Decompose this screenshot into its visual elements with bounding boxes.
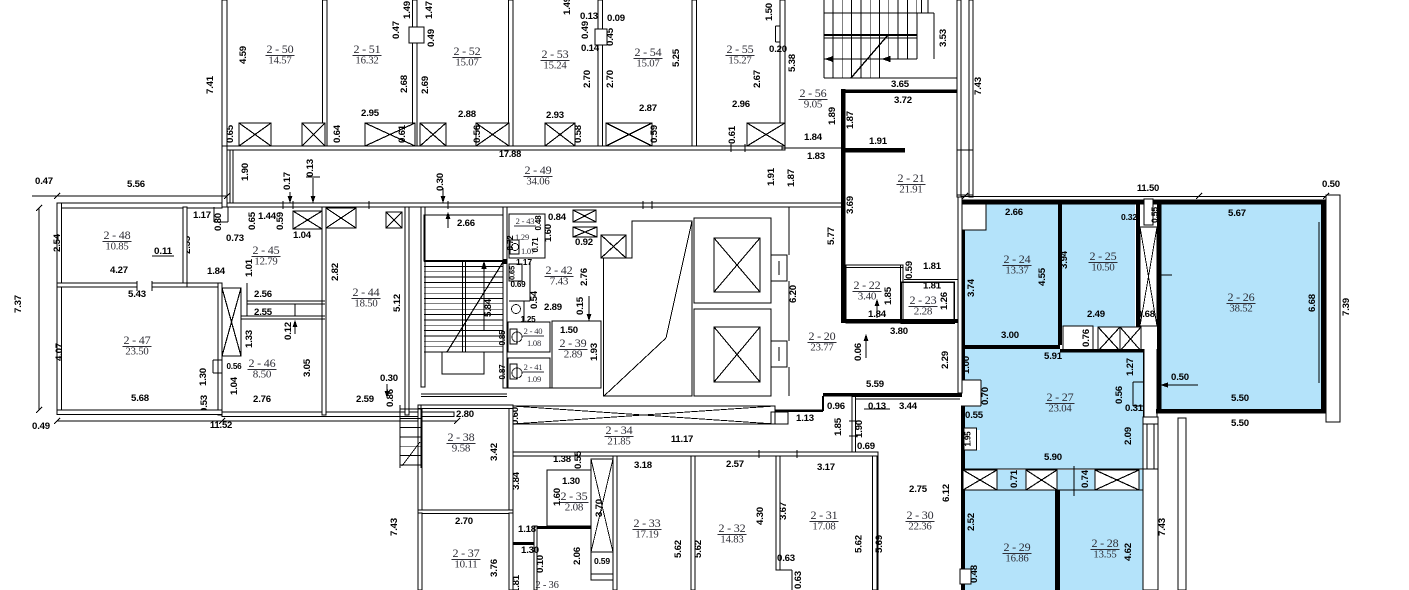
svg-text:2 - 48: 2 - 48 [104,230,131,242]
svg-text:2.52: 2.52 [966,513,976,531]
svg-text:1.49: 1.49 [402,1,412,19]
svg-text:0.68: 0.68 [1137,309,1155,319]
svg-text:2 - 20: 2 - 20 [809,331,836,343]
svg-text:1.18: 1.18 [518,524,536,534]
svg-text:5.62: 5.62 [693,540,703,558]
svg-text:2 - 43: 2 - 43 [516,216,535,226]
svg-text:0.49: 0.49 [32,421,50,431]
svg-text:3.05: 3.05 [302,359,312,377]
svg-text:1.25: 1.25 [521,315,537,324]
svg-text:1.04: 1.04 [229,376,239,395]
svg-text:1.38: 1.38 [553,454,571,464]
svg-text:0.48: 0.48 [534,215,543,231]
svg-text:13.55: 13.55 [1093,550,1116,561]
svg-text:5.59: 5.59 [866,379,884,389]
svg-text:0.56: 0.56 [1114,386,1124,404]
svg-text:1.30: 1.30 [562,476,580,486]
svg-text:0.65: 0.65 [225,125,235,143]
svg-text:2 - 27: 2 - 27 [1047,392,1074,404]
svg-text:4.59: 4.59 [238,46,248,64]
svg-text:0.61: 0.61 [727,126,737,144]
svg-text:34.06: 34.06 [526,177,549,188]
svg-text:2 - 46: 2 - 46 [249,358,276,370]
svg-text:7.41: 7.41 [205,76,215,94]
svg-text:5.50: 5.50 [1231,418,1249,428]
svg-text:0.70: 0.70 [980,387,990,405]
svg-text:1.49: 1.49 [562,0,572,15]
svg-text:14.57: 14.57 [268,56,291,67]
svg-text:0.49: 0.49 [580,21,590,39]
svg-text:2.28: 2.28 [914,307,933,318]
svg-text:1.90: 1.90 [240,163,250,181]
svg-text:5.62: 5.62 [673,540,683,558]
svg-text:0.47: 0.47 [391,21,401,39]
svg-text:2 - 39: 2 - 39 [560,338,587,350]
svg-text:0.13: 0.13 [580,11,598,21]
svg-text:10.50: 10.50 [1091,263,1114,274]
svg-text:0.45: 0.45 [605,28,615,46]
svg-text:2.66: 2.66 [457,218,475,228]
svg-text:2 - 34: 2 - 34 [606,425,633,437]
svg-text:5.84: 5.84 [483,298,493,317]
svg-text:5.91: 5.91 [1044,351,1062,361]
svg-text:3.74: 3.74 [966,278,976,297]
svg-text:2 - 37: 2 - 37 [453,548,480,560]
svg-text:0.72: 0.72 [506,235,515,251]
svg-text:0.63: 0.63 [777,553,795,563]
svg-text:2 - 44: 2 - 44 [353,287,380,299]
svg-text:23.04: 23.04 [1048,404,1072,415]
svg-text:5.69: 5.69 [874,535,884,553]
svg-text:2.66: 2.66 [1005,207,1023,217]
svg-text:1.50: 1.50 [560,325,578,335]
svg-text:2.70: 2.70 [605,70,615,88]
svg-text:2 - 29: 2 - 29 [1004,542,1031,554]
svg-text:5.12: 5.12 [392,294,402,312]
svg-text:5.62: 5.62 [854,535,864,553]
svg-text:2.59: 2.59 [356,394,374,404]
svg-text:0.17: 0.17 [282,172,292,190]
svg-text:0.71: 0.71 [531,237,540,253]
svg-text:0.85: 0.85 [498,330,507,346]
svg-text:0.13: 0.13 [305,159,315,177]
svg-text:7.43: 7.43 [550,277,569,288]
svg-text:2 - 21: 2 - 21 [898,173,925,185]
svg-text:0.12: 0.12 [283,322,293,340]
svg-text:0.50: 0.50 [1322,179,1340,189]
svg-text:1.84: 1.84 [804,132,823,142]
svg-text:2 - 24: 2 - 24 [1004,254,1031,266]
svg-text:2 - 32: 2 - 32 [719,523,746,535]
svg-text:18.50: 18.50 [354,299,377,310]
svg-text:2.54: 2.54 [52,233,62,252]
svg-text:0.92: 0.92 [575,237,593,247]
svg-text:0.13: 0.13 [868,401,886,411]
svg-text:0.58: 0.58 [573,125,583,143]
svg-text:4.62: 4.62 [1123,543,1133,561]
svg-text:1.04: 1.04 [293,230,312,240]
svg-text:2.76: 2.76 [579,268,589,286]
svg-text:7.43: 7.43 [973,77,983,95]
svg-text:1.81: 1.81 [923,261,941,271]
svg-text:0.61: 0.61 [397,125,407,143]
svg-text:1.01: 1.01 [244,259,254,277]
svg-text:2 - 33: 2 - 33 [634,518,661,530]
svg-text:16.86: 16.86 [1005,554,1028,565]
svg-text:6.12: 6.12 [941,484,951,502]
svg-text:3.17: 3.17 [817,462,835,472]
svg-text:2 - 25: 2 - 25 [1090,251,1117,263]
svg-text:0.49: 0.49 [426,29,436,47]
svg-text:0.30: 0.30 [380,373,398,383]
svg-text:2 - 45: 2 - 45 [253,245,280,257]
svg-text:1.81: 1.81 [923,281,941,291]
svg-text:1.33: 1.33 [244,330,254,348]
svg-text:17.08: 17.08 [812,522,835,533]
svg-text:0.63: 0.63 [793,571,803,589]
svg-text:4.27: 4.27 [110,265,128,275]
svg-text:7.37: 7.37 [13,295,23,313]
svg-text:1.17: 1.17 [516,257,532,267]
svg-text:1.91: 1.91 [766,168,776,186]
svg-text:2.29: 2.29 [940,351,950,369]
svg-text:2 - 41: 2 - 41 [524,362,543,372]
svg-text:2 - 49: 2 - 49 [525,165,552,177]
svg-text:2.08: 2.08 [565,503,584,514]
svg-text:0.64: 0.64 [332,124,342,143]
svg-text:2.70: 2.70 [582,70,592,88]
svg-text:1.09: 1.09 [527,374,541,384]
svg-text:2.76: 2.76 [253,394,271,404]
svg-text:1.85: 1.85 [833,418,843,436]
svg-text:3.67: 3.67 [778,502,788,520]
svg-text:1.27: 1.27 [1125,358,1135,376]
svg-text:0.59: 0.59 [649,125,659,143]
svg-text:0.06: 0.06 [853,343,863,361]
svg-text:1.83: 1.83 [807,151,825,161]
svg-text:1.90: 1.90 [854,420,864,438]
svg-text:0.74: 0.74 [1080,469,1090,488]
svg-text:2 - 35: 2 - 35 [561,491,588,503]
svg-text:1.30: 1.30 [521,545,539,555]
svg-text:0.11: 0.11 [154,246,172,256]
svg-text:2.89: 2.89 [544,302,562,312]
svg-text:1.47: 1.47 [424,1,434,19]
svg-text:0.73: 0.73 [226,233,244,243]
svg-text:10.11: 10.11 [454,560,477,571]
svg-text:2 - 30: 2 - 30 [907,510,934,522]
svg-text:2.96: 2.96 [732,99,750,109]
svg-text:17.19: 17.19 [635,530,658,541]
svg-text:5.77: 5.77 [826,227,836,245]
svg-text:1.30: 1.30 [198,368,208,386]
svg-text:2.57: 2.57 [726,459,744,469]
svg-text:14.83: 14.83 [720,535,743,546]
svg-text:2.75: 2.75 [909,484,927,494]
svg-text:23.77: 23.77 [810,343,833,354]
svg-text:3.65: 3.65 [891,79,909,89]
svg-text:7.43: 7.43 [389,518,399,536]
svg-text:0.50: 0.50 [1171,372,1189,382]
svg-text:15.27: 15.27 [728,56,751,67]
svg-text:0.56: 0.56 [472,125,482,143]
svg-text:1.84: 1.84 [207,266,226,276]
svg-text:2.88: 2.88 [458,109,476,119]
svg-text:5.25: 5.25 [671,49,681,67]
svg-text:17.88: 17.88 [499,149,521,159]
svg-text:9.58: 9.58 [452,444,471,455]
svg-text:4.30: 4.30 [755,507,765,525]
svg-text:13.37: 13.37 [1005,266,1028,277]
svg-text:0.55: 0.55 [573,451,583,469]
svg-text:1.60: 1.60 [543,224,553,242]
svg-text:8.50: 8.50 [253,370,272,381]
svg-text:3.69: 3.69 [845,196,855,214]
svg-text:2 - 28: 2 - 28 [1092,538,1119,550]
svg-text:0.55: 0.55 [965,410,983,420]
svg-text:2 - 50: 2 - 50 [267,44,294,56]
svg-text:1.87: 1.87 [845,111,855,129]
svg-text:1.84: 1.84 [868,309,887,319]
svg-text:1.95: 1.95 [964,431,973,447]
svg-text:2.67: 2.67 [752,70,762,88]
svg-text:0.32: 0.32 [1121,212,1137,222]
svg-text:22.36: 22.36 [908,522,931,533]
svg-text:16.32: 16.32 [355,56,378,67]
svg-text:2.09: 2.09 [1123,427,1133,445]
svg-text:2 - 51: 2 - 51 [354,44,381,56]
svg-text:21.85: 21.85 [607,437,630,448]
svg-text:2.06: 2.06 [572,547,582,565]
svg-text:0.65: 0.65 [508,266,517,280]
svg-text:1.50: 1.50 [764,3,774,21]
svg-text:0.71: 0.71 [1009,470,1019,488]
svg-text:3.44: 3.44 [899,401,918,411]
svg-text:21.91: 21.91 [899,185,922,196]
svg-text:0.59: 0.59 [594,556,610,566]
svg-text:1.17: 1.17 [193,210,211,220]
svg-text:0.69: 0.69 [511,280,527,289]
svg-text:1.81: 1.81 [511,575,521,590]
svg-text:10.85: 10.85 [105,242,128,253]
svg-text:3.80: 3.80 [890,326,908,336]
svg-text:2 - 31: 2 - 31 [811,510,838,522]
svg-text:2 - 38: 2 - 38 [448,432,475,444]
svg-text:2.80: 2.80 [456,409,474,419]
svg-text:2.69: 2.69 [420,76,430,94]
svg-text:0.15: 0.15 [575,297,585,315]
svg-text:11.50: 11.50 [1137,183,1159,193]
svg-text:0.30: 0.30 [435,173,445,191]
svg-text:2 - 26: 2 - 26 [1228,292,1255,304]
svg-text:0.31: 0.31 [1125,403,1143,413]
svg-text:15.07: 15.07 [636,59,659,70]
svg-text:15.07: 15.07 [455,58,478,69]
svg-text:2.55: 2.55 [254,307,272,317]
svg-text:2 - 36: 2 - 36 [535,580,558,590]
svg-text:3.53: 3.53 [938,29,948,47]
svg-text:5.67: 5.67 [1228,208,1246,218]
svg-text:2 - 52: 2 - 52 [454,46,481,58]
svg-text:4.55: 4.55 [1037,268,1047,286]
svg-text:7.43: 7.43 [1157,518,1167,536]
svg-text:2.49: 2.49 [1087,309,1105,319]
svg-text:12.79: 12.79 [254,257,277,268]
svg-text:3.18: 3.18 [634,460,652,470]
svg-text:1.85: 1.85 [883,287,893,305]
svg-text:1.60: 1.60 [552,488,562,506]
svg-text:0.20: 0.20 [769,44,787,54]
svg-text:6.68: 6.68 [1307,294,1317,312]
svg-text:0.14: 0.14 [581,43,600,53]
svg-text:2 - 56: 2 - 56 [800,88,827,100]
svg-text:2 - 53: 2 - 53 [542,49,569,61]
svg-text:0.59: 0.59 [275,212,285,230]
svg-text:9.05: 9.05 [804,100,823,111]
svg-text:1.87: 1.87 [786,169,796,187]
svg-text:2.82: 2.82 [330,263,340,281]
svg-text:1.91: 1.91 [869,136,887,146]
svg-text:1.13: 1.13 [796,413,814,423]
svg-text:2 - 55: 2 - 55 [727,44,754,56]
svg-text:23.50: 23.50 [125,347,148,358]
svg-text:5.43: 5.43 [128,289,146,299]
svg-text:3.94: 3.94 [1059,250,1069,269]
svg-text:7.39: 7.39 [1341,298,1351,316]
svg-text:15.24: 15.24 [543,61,567,72]
svg-text:4.07: 4.07 [54,343,64,361]
svg-text:2.68: 2.68 [399,75,409,93]
svg-text:2.89: 2.89 [564,350,583,361]
svg-text:5.56: 5.56 [127,179,145,189]
svg-text:2 - 23: 2 - 23 [910,295,937,307]
svg-text:38.52: 38.52 [1229,304,1252,315]
svg-text:2.56: 2.56 [254,289,272,299]
svg-text:0.59: 0.59 [904,261,914,279]
svg-text:0.96: 0.96 [827,401,845,411]
svg-text:1.26: 1.26 [939,292,949,310]
svg-text:2 - 42: 2 - 42 [546,265,573,277]
svg-text:0.69: 0.69 [857,441,875,451]
svg-text:1.89: 1.89 [827,107,837,125]
svg-text:2.95: 2.95 [361,108,379,118]
svg-text:3.76: 3.76 [489,559,499,577]
svg-text:0.80: 0.80 [213,213,223,231]
svg-text:0.56: 0.56 [227,362,243,371]
svg-text:0.87: 0.87 [498,365,507,380]
svg-text:3.40: 3.40 [858,292,877,303]
svg-text:1.08: 1.08 [527,338,541,348]
svg-text:11.17: 11.17 [671,434,693,444]
svg-text:5.90: 5.90 [1044,452,1062,462]
svg-text:1.29: 1.29 [515,232,529,242]
svg-text:5.68: 5.68 [131,393,149,403]
svg-text:5.38: 5.38 [787,54,797,72]
svg-text:3.72: 3.72 [894,95,912,105]
svg-text:0.76: 0.76 [1081,329,1091,347]
svg-text:2.70: 2.70 [455,516,473,526]
svg-text:3.70: 3.70 [594,499,604,517]
svg-text:3.00: 3.00 [1001,330,1019,340]
svg-text:0.47: 0.47 [35,176,53,186]
svg-text:0.48: 0.48 [969,565,979,583]
svg-text:0.09: 0.09 [607,13,625,23]
svg-text:2.87: 2.87 [639,103,657,113]
svg-text:0.84: 0.84 [548,212,567,222]
svg-text:1.93: 1.93 [589,343,599,361]
svg-text:2 - 40: 2 - 40 [524,326,543,336]
svg-text:2 - 47: 2 - 47 [124,335,151,347]
svg-text:3.42: 3.42 [489,443,499,461]
svg-text:2 - 22: 2 - 22 [854,280,881,292]
svg-text:2 - 54: 2 - 54 [635,47,662,59]
svg-text:2.93: 2.93 [546,110,564,120]
svg-text:0.65: 0.65 [247,212,257,230]
svg-text:0.10: 0.10 [535,555,545,573]
svg-text:5.50: 5.50 [1231,393,1249,403]
